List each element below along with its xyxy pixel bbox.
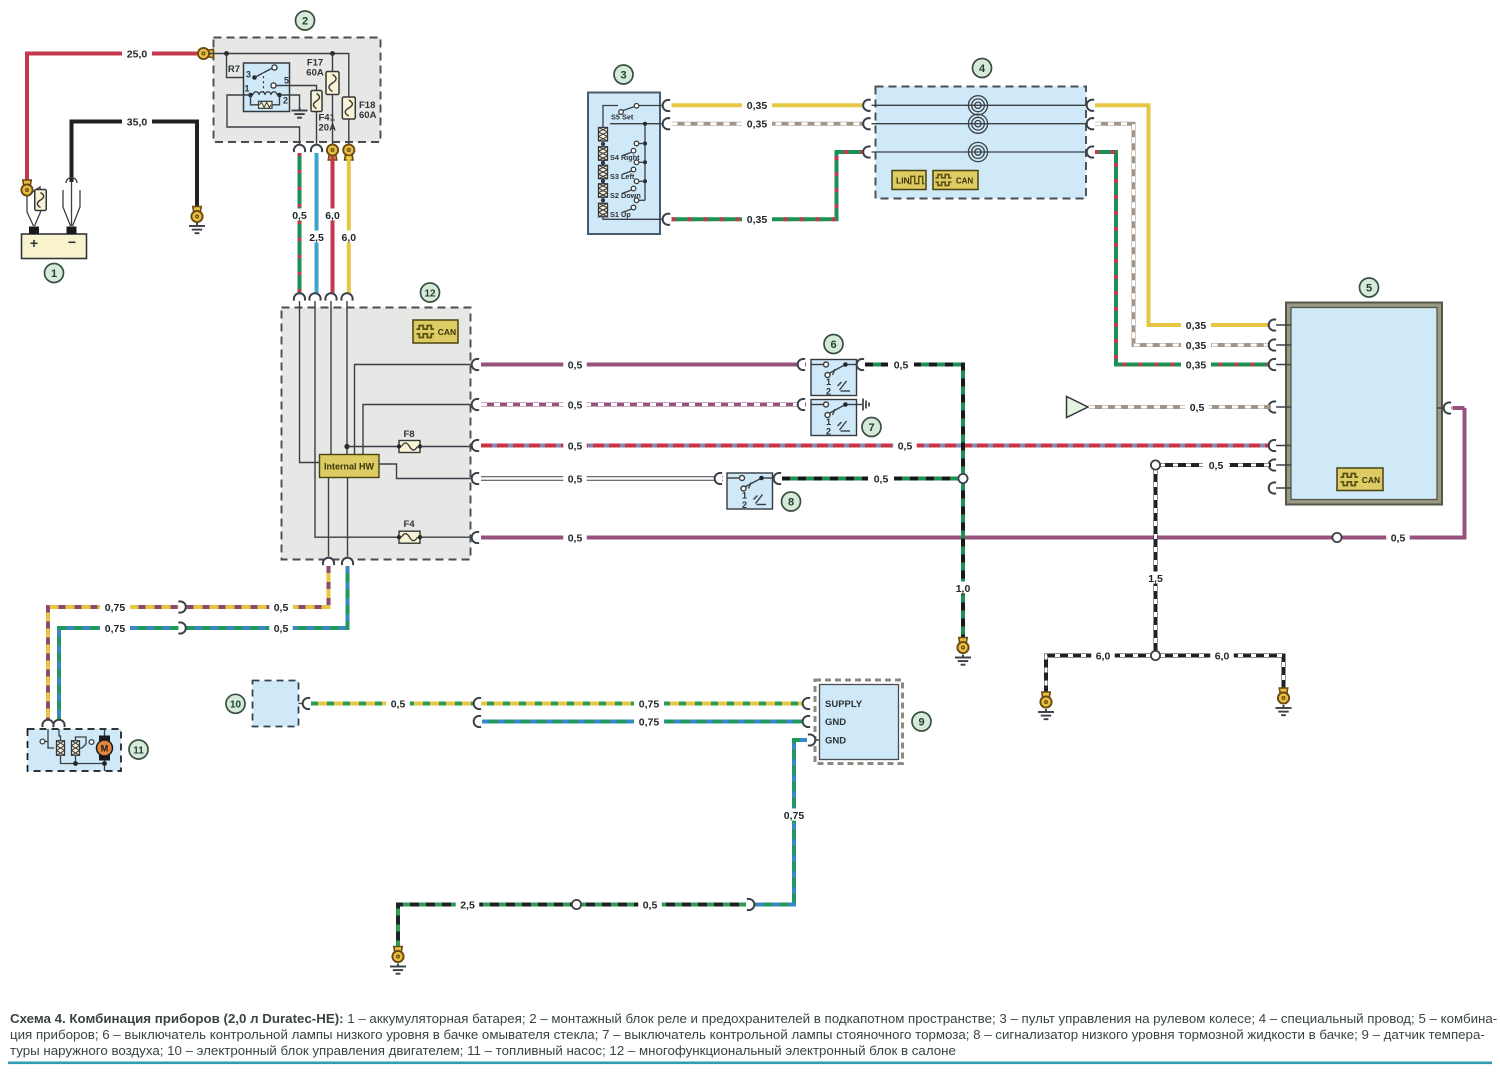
svg-text:6,0: 6,0 (325, 210, 340, 222)
svg-text:0,5: 0,5 (894, 359, 909, 371)
svg-text:2: 2 (302, 15, 308, 27)
svg-text:R7: R7 (228, 64, 240, 75)
svg-text:0,5: 0,5 (568, 440, 583, 452)
svg-text:1: 1 (742, 491, 747, 501)
svg-text:0,5: 0,5 (1391, 532, 1406, 544)
svg-text:6: 6 (830, 339, 836, 351)
svg-text:6,0: 6,0 (341, 232, 356, 244)
svg-text:0,35: 0,35 (1186, 340, 1207, 352)
svg-text:туры наружного воздуха; 10 – э: туры наружного воздуха; 10 – электронный… (10, 1043, 956, 1058)
svg-text:8: 8 (788, 496, 794, 508)
svg-text:ция приборов; 6 – выключатель: ция приборов; 6 – выключатель контрольно… (10, 1027, 1485, 1042)
svg-text:60A: 60A (359, 110, 377, 121)
svg-text:0,5: 0,5 (568, 532, 583, 544)
svg-text:2,5: 2,5 (309, 232, 324, 244)
svg-text:6,0: 6,0 (1215, 650, 1230, 662)
svg-text:0,75: 0,75 (105, 602, 126, 614)
svg-text:0,35: 0,35 (1186, 359, 1207, 371)
svg-text:2,5: 2,5 (460, 899, 475, 911)
svg-text:0,5: 0,5 (874, 473, 889, 485)
svg-text:0,75: 0,75 (105, 623, 126, 635)
svg-text:0,75: 0,75 (784, 810, 805, 822)
svg-text:3: 3 (620, 69, 626, 81)
svg-text:1: 1 (826, 417, 831, 427)
svg-text:GND: GND (825, 736, 846, 747)
svg-text:0,5: 0,5 (643, 899, 658, 911)
svg-text:0,35: 0,35 (747, 100, 768, 112)
svg-text:1: 1 (826, 377, 831, 387)
svg-text:0,5: 0,5 (568, 399, 583, 411)
svg-text:25,0: 25,0 (127, 48, 148, 60)
svg-text:CAN: CAN (1362, 475, 1380, 485)
svg-text:0,35: 0,35 (747, 214, 768, 226)
svg-text:5: 5 (1366, 282, 1372, 294)
svg-text:6,0: 6,0 (1096, 650, 1111, 662)
svg-text:SUPPLY: SUPPLY (825, 699, 863, 710)
svg-text:2: 2 (283, 96, 288, 106)
svg-text:0,35: 0,35 (747, 118, 768, 130)
svg-text:0,5: 0,5 (898, 440, 913, 452)
svg-text:60A: 60A (306, 68, 324, 79)
svg-text:0,5: 0,5 (292, 210, 307, 222)
svg-text:+: + (30, 235, 38, 251)
svg-text:1: 1 (244, 84, 249, 94)
svg-text:2: 2 (826, 427, 831, 437)
svg-text:4: 4 (979, 63, 986, 75)
svg-text:7: 7 (868, 422, 874, 434)
svg-text:0,75: 0,75 (639, 698, 660, 710)
svg-text:9: 9 (918, 716, 924, 728)
svg-text:CAN: CAN (438, 327, 456, 337)
svg-text:Схема 4. Комбинация приборов (: Схема 4. Комбинация приборов (2,0 л Dura… (10, 1011, 1497, 1026)
svg-text:10: 10 (230, 700, 242, 711)
svg-text:12: 12 (424, 288, 436, 299)
svg-text:CAN: CAN (956, 177, 974, 186)
svg-text:0,5: 0,5 (568, 359, 583, 371)
svg-text:Internal HW: Internal HW (324, 462, 375, 472)
svg-text:0,5: 0,5 (1190, 402, 1205, 414)
svg-text:2: 2 (742, 500, 747, 510)
svg-text:0,5: 0,5 (391, 698, 406, 710)
svg-text:1: 1 (51, 268, 57, 280)
svg-text:3: 3 (246, 70, 251, 80)
svg-text:0,5: 0,5 (274, 623, 289, 635)
svg-text:GND: GND (825, 717, 846, 728)
svg-text:0,35: 0,35 (1186, 320, 1207, 332)
svg-text:35,0: 35,0 (127, 116, 148, 128)
svg-text:2: 2 (826, 387, 831, 397)
svg-text:1,0: 1,0 (956, 583, 971, 595)
svg-text:S5 Set: S5 Set (611, 113, 634, 122)
svg-text:0,5: 0,5 (274, 602, 289, 614)
svg-text:F8: F8 (403, 429, 414, 440)
svg-text:LIN: LIN (896, 176, 910, 186)
svg-text:0,5: 0,5 (568, 473, 583, 485)
svg-text:S3 Left: S3 Left (610, 172, 635, 181)
svg-text:0,75: 0,75 (639, 716, 660, 728)
svg-text:0,5: 0,5 (1209, 460, 1224, 472)
svg-text:F4: F4 (403, 519, 415, 530)
svg-text:M: M (101, 744, 109, 754)
svg-text:1,5: 1,5 (1148, 573, 1163, 585)
svg-text:−: − (68, 234, 76, 250)
svg-text:S1 Up: S1 Up (610, 210, 631, 219)
svg-text:5: 5 (284, 76, 289, 86)
svg-text:20A: 20A (319, 123, 337, 134)
svg-text:11: 11 (133, 745, 144, 756)
